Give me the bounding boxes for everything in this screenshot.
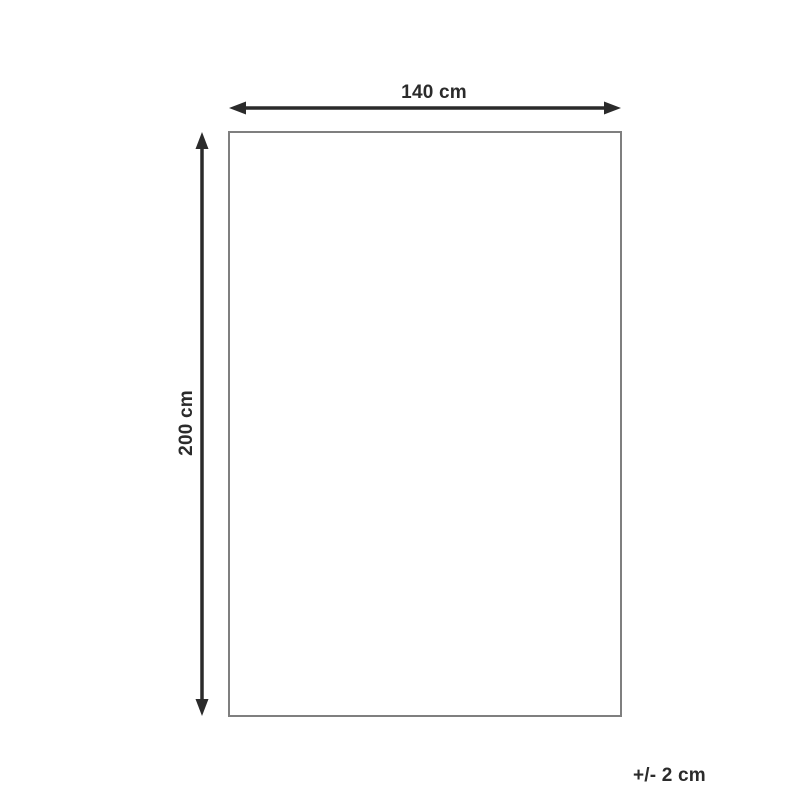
product-outline-rect (228, 131, 622, 717)
width-arrowhead-left (229, 102, 246, 115)
dimension-diagram: 140 cm 200 cm +/- 2 cm (0, 0, 800, 800)
height-arrow-icon (194, 131, 210, 717)
tolerance-label: +/- 2 cm (633, 765, 706, 787)
height-arrowhead-bottom (196, 699, 209, 716)
height-arrowhead-top (196, 132, 209, 149)
width-arrow-icon (228, 100, 622, 116)
width-arrowhead-right (604, 102, 621, 115)
